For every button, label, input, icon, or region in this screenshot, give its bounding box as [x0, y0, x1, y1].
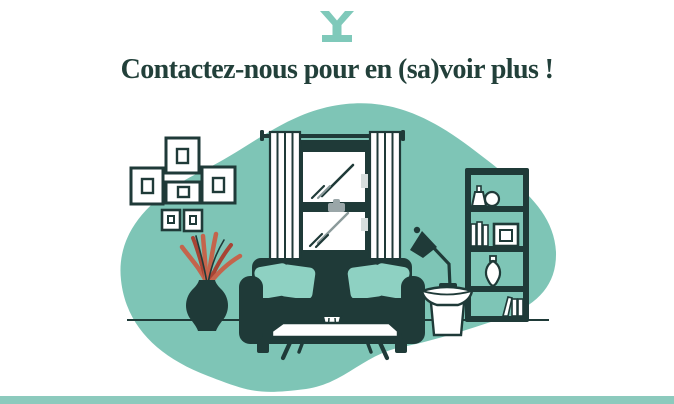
picture-frame — [162, 210, 180, 230]
bottom-accent-bar — [0, 396, 674, 404]
glass-tab — [361, 218, 368, 231]
coffee-table-top — [272, 323, 398, 337]
curtain-right — [370, 132, 400, 262]
curtain-left — [270, 132, 300, 262]
shelf-framed-photo — [494, 224, 518, 246]
picture-frame — [202, 167, 235, 203]
lamp-knob — [414, 227, 420, 233]
bookshelf — [465, 168, 529, 322]
picture-frame — [131, 168, 163, 204]
sofa-leg — [257, 342, 269, 353]
header: Contactez-nous pour en (sa)voir plus ! — [0, 11, 674, 84]
window-with-curtains — [260, 130, 405, 262]
curtain-rod-finial — [260, 130, 264, 141]
side-table-bowl — [422, 287, 472, 305]
picture-frame — [166, 182, 200, 203]
shelf-sphere — [485, 192, 499, 206]
sofa-armrest — [239, 276, 263, 344]
sofa-leg — [395, 342, 407, 353]
sofa-with-pillows — [239, 258, 425, 353]
picture-frame — [166, 138, 199, 173]
curtain-rod-finial — [401, 130, 405, 141]
glass-tab — [361, 174, 368, 188]
picture-frame — [184, 210, 202, 231]
sofa-armrest — [401, 276, 425, 344]
contact-section: Contactez-nous pour en (sa)voir plus ! — [0, 0, 674, 404]
window-glass-upper — [303, 152, 365, 202]
shelf-books — [471, 222, 488, 246]
page-title: Contactez-nous pour en (sa)voir plus ! — [0, 55, 674, 84]
brand-y-icon — [320, 11, 354, 42]
side-table-base — [431, 303, 464, 335]
pillow — [278, 264, 316, 300]
